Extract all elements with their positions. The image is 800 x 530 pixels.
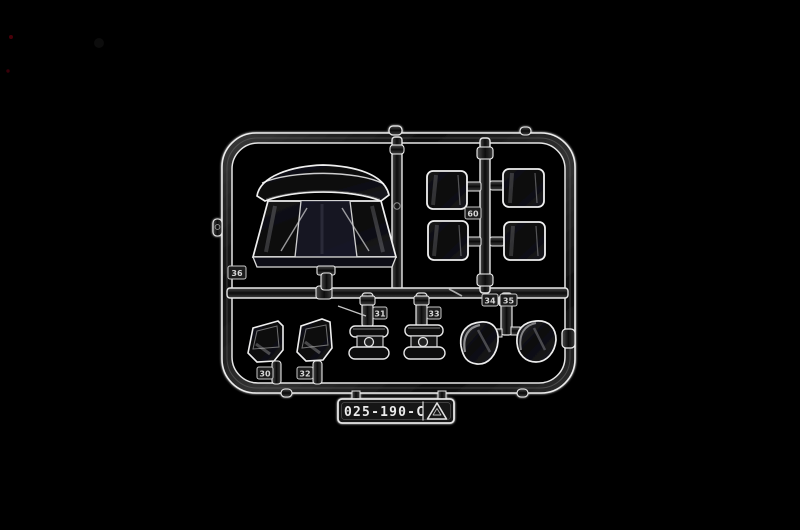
lens-circle	[365, 338, 374, 347]
side-window-part-1	[427, 171, 467, 209]
lens-bar	[349, 347, 389, 359]
red-speck	[6, 69, 9, 72]
tag-number: 60	[467, 210, 479, 219]
dome-shell	[517, 321, 556, 362]
window-pane	[248, 321, 283, 362]
tag-number: 33	[428, 310, 439, 319]
lens-bar	[404, 347, 445, 359]
side-window-part-4	[504, 222, 545, 260]
dome-shell	[461, 322, 498, 364]
runner-sleeve	[360, 296, 375, 305]
runner-sleeve	[390, 145, 404, 154]
part-number-tag-frame: 36	[228, 266, 246, 279]
side-window-part-3	[428, 221, 468, 260]
gate-stub-bottom-right	[517, 389, 528, 397]
faint-smudge	[94, 38, 104, 48]
gate-stub-top	[389, 126, 402, 135]
red-speck	[9, 35, 13, 39]
sprue-stub	[490, 181, 504, 190]
dome-part-right	[517, 321, 556, 362]
part-number-tag-windows: 60	[465, 207, 481, 219]
gate-stub-bottom-left	[281, 389, 292, 397]
rail-sleeve-right	[562, 329, 575, 348]
dome-part-left	[461, 322, 498, 364]
frame-divider-vertical	[390, 137, 404, 295]
window-pane	[297, 319, 332, 361]
tag-number: 35	[503, 297, 515, 306]
runner-sleeve	[414, 296, 429, 305]
runner-sleeve	[477, 274, 493, 286]
sprue: 36	[213, 126, 575, 423]
runner-sleeve	[477, 147, 493, 159]
lens-bar	[350, 326, 388, 337]
dust-specks	[6, 35, 104, 73]
center-pane-tint	[295, 201, 357, 257]
divider-tube	[392, 137, 402, 295]
side-window-part-2	[503, 169, 544, 207]
sprue-label: 025-190-C	[338, 391, 454, 423]
tag-number: 32	[299, 370, 310, 379]
glass-streak	[510, 173, 512, 203]
glass-streak	[511, 226, 513, 256]
gate-stub-left	[213, 219, 222, 236]
sprue-stub	[466, 182, 481, 191]
gate-stub-top-right	[520, 127, 531, 135]
sprue-stub	[313, 361, 322, 384]
tag-number: 34	[484, 297, 496, 306]
sprue-code-text: 025-190-C	[344, 405, 425, 420]
tag-number: 36	[231, 269, 243, 278]
lens-circle	[419, 338, 428, 347]
tag-number: 30	[259, 370, 271, 379]
sprue-stub	[490, 237, 504, 246]
sprue-photo: 36	[0, 0, 800, 530]
tag-number: 31	[374, 310, 386, 319]
sprue-stub	[321, 273, 332, 290]
lens-bar	[405, 325, 443, 336]
photo-stage: 36	[0, 0, 800, 530]
